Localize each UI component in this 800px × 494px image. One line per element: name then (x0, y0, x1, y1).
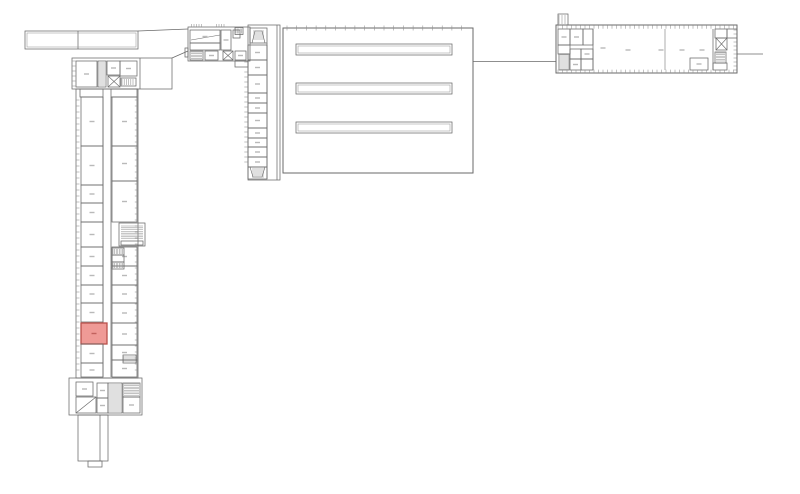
room-label (84, 73, 89, 74)
room-label (680, 49, 685, 50)
landing (121, 241, 143, 245)
room-label (697, 63, 702, 64)
room-label (122, 163, 127, 164)
canopy (558, 14, 568, 25)
room-label (90, 165, 95, 166)
floor-plan-page (0, 0, 800, 494)
room-label (659, 49, 664, 50)
room-label (255, 142, 260, 143)
room-label (203, 36, 208, 37)
room (715, 29, 727, 38)
room-label (90, 193, 95, 194)
room-label (122, 352, 127, 353)
room-label (700, 49, 705, 50)
skylight (296, 83, 452, 94)
room-label (209, 55, 214, 56)
room-label (255, 52, 260, 53)
skylight (296, 122, 452, 133)
room-label (255, 107, 260, 108)
room-label (255, 132, 260, 133)
room-label (224, 39, 229, 40)
room-label (100, 390, 105, 391)
room-label (573, 64, 578, 65)
room-label (90, 256, 95, 257)
room-label (601, 47, 606, 48)
room-label (122, 293, 127, 294)
room-label (562, 36, 567, 37)
room-label (626, 49, 631, 50)
room (80, 89, 103, 97)
room-label (122, 312, 127, 313)
room (583, 29, 593, 45)
ramp-line (76, 397, 96, 413)
stair-core (119, 223, 145, 246)
room (111, 89, 137, 97)
north-bridge-inner (27, 33, 136, 47)
wall-line (191, 35, 220, 40)
south-annex (78, 415, 108, 461)
skylight-inner (298, 46, 450, 53)
room-label (90, 212, 95, 213)
annex-step (88, 461, 102, 467)
room-label (126, 68, 131, 69)
room-label (255, 120, 260, 121)
room (581, 59, 593, 70)
room-label (90, 369, 95, 370)
room (190, 43, 220, 50)
room-label (255, 67, 260, 68)
room-label (122, 333, 127, 334)
room-label (238, 55, 243, 56)
shaft (715, 52, 726, 63)
skylight (296, 44, 452, 55)
skylight-inner (298, 85, 450, 92)
room-label (90, 234, 95, 235)
room-label (100, 405, 105, 406)
room-label (90, 312, 95, 313)
stairwell (559, 54, 569, 70)
room-label (255, 83, 260, 84)
room-label (90, 353, 95, 354)
floor-plan (0, 0, 800, 494)
skylight-inner (298, 124, 450, 131)
room (727, 29, 737, 38)
link-line (138, 29, 188, 31)
stairwell (108, 383, 122, 413)
north-bridge (25, 31, 138, 49)
room-label (90, 275, 95, 276)
room-label (255, 151, 260, 152)
room-label (111, 67, 116, 68)
room (570, 49, 581, 59)
room-label (122, 368, 127, 369)
room-label (255, 161, 260, 162)
room-label (122, 201, 127, 202)
room-label (585, 53, 590, 54)
room-label (129, 404, 134, 405)
room-label (574, 36, 579, 37)
room-label (122, 256, 127, 257)
main-hall (283, 28, 473, 173)
room-label (122, 275, 127, 276)
room-label (90, 293, 95, 294)
stair-flight (250, 167, 265, 177)
shaft (123, 383, 140, 397)
room (713, 63, 727, 70)
room-label (90, 121, 95, 122)
room-label (82, 388, 87, 389)
room (558, 45, 570, 54)
room-label (122, 121, 127, 122)
room-label (255, 97, 260, 98)
room-label (92, 333, 97, 334)
